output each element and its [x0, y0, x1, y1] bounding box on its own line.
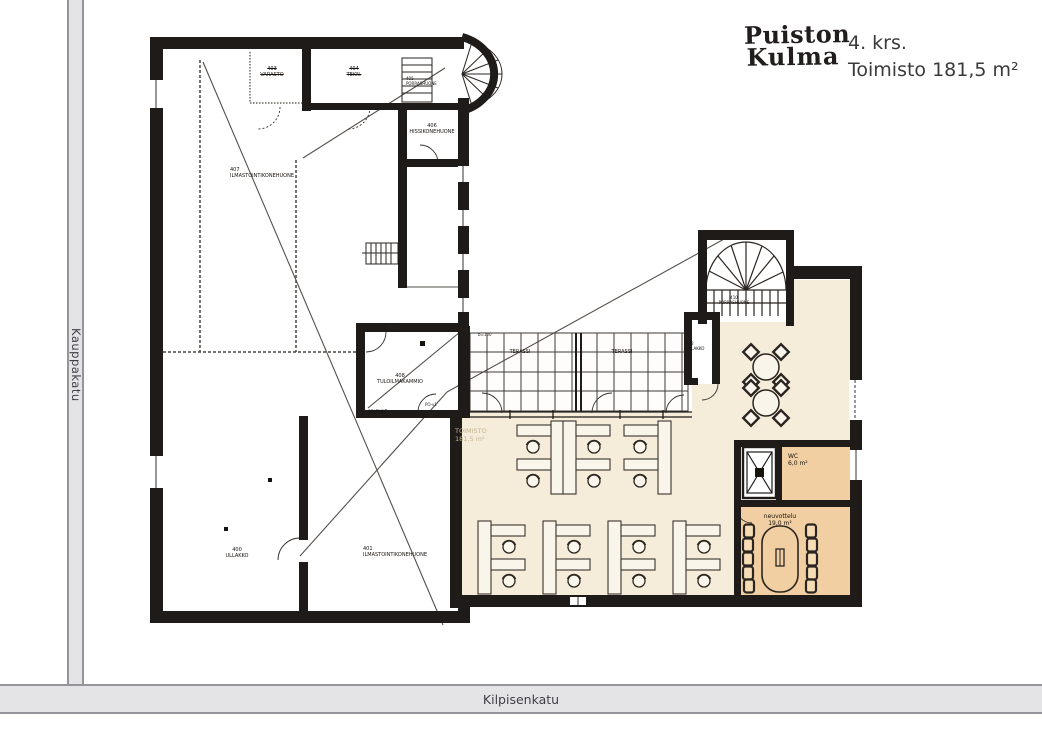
street-band-kilpisenkatu: Kilpisenkatu — [0, 684, 1042, 714]
room-label-saleikko: SÄLEIKKÖ — [368, 410, 387, 415]
room-label-405: 405PORRASHUONE — [406, 77, 437, 87]
room-label-404: 404TEKN. — [334, 66, 374, 78]
street-label-kilpisenkatu: Kilpisenkatu — [483, 692, 559, 707]
puiston-kulma-logo: Puiston Kulma — [744, 24, 842, 68]
floorplan-page: Kauppakatu Kilpisenkatu Puiston Kulma 4.… — [0, 0, 1042, 737]
street-label-kauppakatu: Kauppakatu — [69, 328, 83, 402]
room-label-403: 403VARASTO — [252, 66, 292, 78]
area-label: Toimisto 181,5 m² — [848, 59, 1019, 81]
room-label-407: 407ILMASTOINTIKONEHUONE — [230, 167, 294, 179]
room-label-toimisto: TOIMISTO181,5 m² — [455, 428, 487, 444]
annotation-b100: b=100 — [478, 333, 492, 337]
room-label-400: 400ULLAKKO — [217, 547, 257, 559]
room-label-wc: WC6,0 m² — [788, 453, 808, 467]
floorplan-drawing — [0, 0, 1042, 737]
annotation-po-v1-a: PO-v1 — [425, 403, 437, 407]
room-label-terassi-1: TERASSI — [498, 349, 542, 355]
annotation-po-v1-b: PO-v1 — [388, 326, 400, 330]
room-label-406: 406HISSIKONEHUONE — [398, 123, 466, 135]
room-label-408: 408TULOILMAKAMMIO — [365, 373, 435, 385]
room-label-terassi-2: TERASSI — [600, 349, 644, 355]
room-label-neuvottelu: neuvottelu19,0 m² — [749, 513, 811, 527]
floor-label: 4. krs. — [848, 32, 907, 54]
room-label-401: 401ILMASTOINTIKONEHUONE — [363, 546, 427, 558]
street-band-kauppakatu: Kauppakatu — [67, 0, 84, 684]
room-label-410: 410PORRASHUONE — [704, 296, 764, 306]
room-label-402: 402ULLAKKO — [686, 342, 704, 352]
